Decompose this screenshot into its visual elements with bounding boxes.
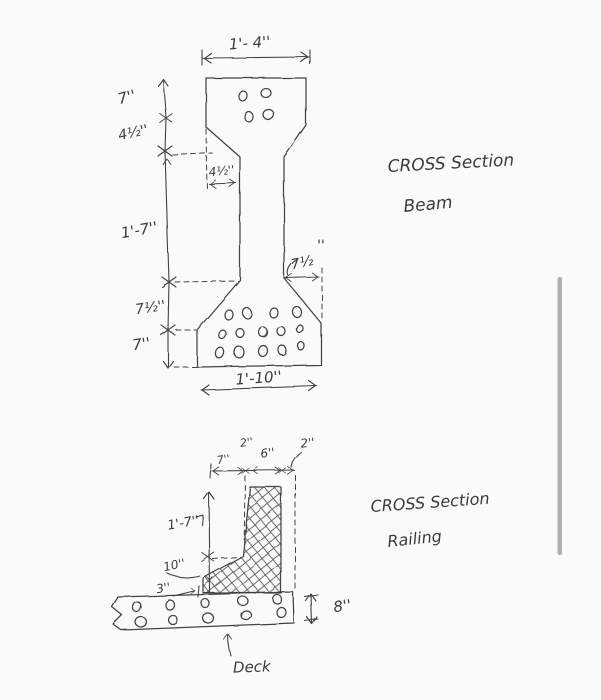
hole: [297, 341, 305, 350]
hole: [277, 327, 285, 336]
hole: [277, 344, 287, 355]
beam-dim-right-taper: 7½: [290, 253, 316, 273]
hole: [218, 329, 227, 339]
beam-dim-right-taper-marks: '': [317, 238, 325, 254]
beam-caption-line1: CROSS Section: [387, 150, 514, 177]
hole: [233, 345, 245, 358]
scrollbar-thumb[interactable]: [558, 277, 563, 555]
hole: [272, 594, 282, 604]
beam-dim-web-width: 4½'': [208, 163, 235, 180]
railing-dim-left-2: 10'': [162, 556, 186, 574]
hole: [260, 88, 271, 99]
railing-dim-left-1: 1'-7'': [166, 513, 200, 533]
beam-outline: [197, 78, 321, 367]
hole: [215, 347, 226, 360]
paper-page: 1'- 4'' 7'' 4½'' 1'-7'' 7½'' 7'' 4½'' 7½…: [0, 0, 601, 700]
hole: [291, 306, 302, 319]
deck-holes: [132, 594, 286, 628]
hole: [200, 598, 209, 608]
hole: [224, 309, 234, 320]
hole: [166, 600, 175, 610]
beam-dim-left-taper: 4½'': [117, 122, 150, 144]
railing-dim-top-4: 2'': [300, 435, 316, 450]
hole: [135, 616, 148, 628]
beam-dim-left-top-flange: 7'': [116, 86, 138, 108]
beam-dim-bottom-width: 1'-10'': [235, 367, 283, 388]
railing-drawing: [112, 452, 318, 656]
deck-label: Deck: [233, 657, 273, 676]
hole: [238, 597, 248, 606]
hole: [202, 612, 215, 624]
beam-caption-line2: Beam: [403, 193, 454, 217]
beam-top-flange-holes: [238, 88, 274, 123]
hole: [263, 109, 274, 119]
beam-dim-left-web: 1'-7'': [119, 218, 158, 242]
railing-dim-top-2: 2'': [239, 435, 254, 450]
beam-bottom-flange-holes: [215, 306, 305, 360]
hole: [169, 616, 178, 625]
beam-dashed-extensions: [173, 129, 322, 367]
hole: [258, 326, 269, 337]
hole: [238, 90, 248, 102]
hole: [240, 610, 251, 620]
hole: [132, 601, 142, 612]
railing-dim-top-1: 7'': [216, 452, 231, 467]
hole: [296, 324, 304, 333]
hole: [236, 329, 244, 338]
hole: [244, 111, 254, 122]
hole: [269, 307, 279, 318]
railing-caption-line2: Railing: [386, 526, 442, 551]
sketch-canvas: 1'- 4'' 7'' 4½'' 1'-7'' 7½'' 7'' 4½'' 7½…: [0, 0, 601, 700]
beam-dim-left-bottom-taper: 7½'': [134, 298, 166, 318]
beam-dim-top-width: 1'- 4'': [228, 33, 271, 54]
hole: [241, 307, 252, 320]
railing-caption-line1: CROSS Section: [370, 489, 490, 516]
beam-dim-left-bottom-flange: 7'': [131, 334, 151, 354]
railing-profile: [203, 487, 281, 593]
railing-dim-top-3: 6'': [260, 445, 276, 460]
hole: [276, 606, 287, 618]
annotations: 1'- 4'' 7'' 4½'' 1'-7'' 7½'' 7'' 4½'' 7½…: [116, 33, 515, 677]
railing-dim-left-3: 3'': [155, 580, 171, 596]
beam-drawing: [158, 50, 322, 395]
hole: [258, 345, 269, 357]
railing-dim-deck-thickness: 8'': [332, 596, 352, 616]
